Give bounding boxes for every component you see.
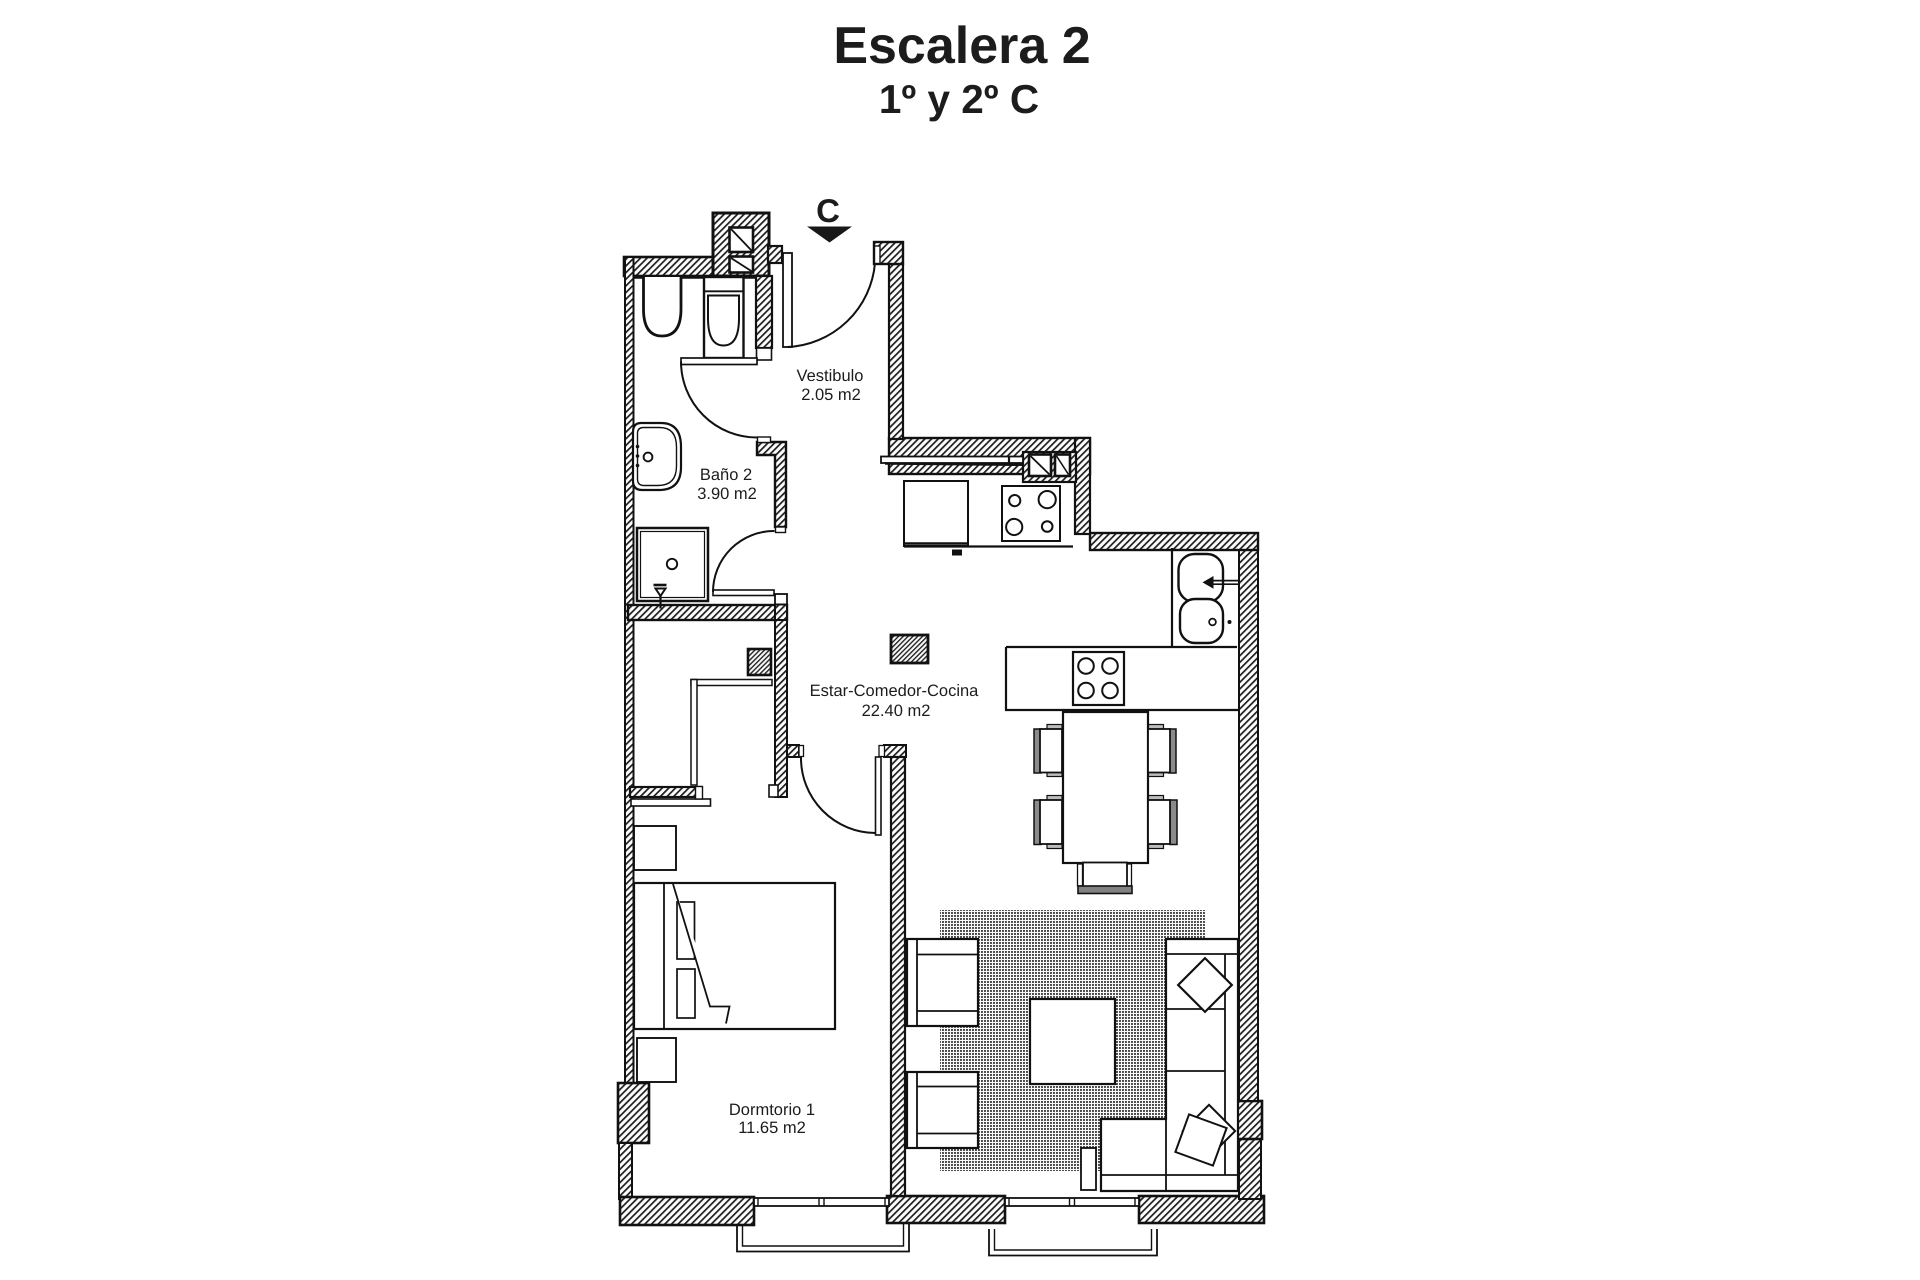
svg-text:Baño 2: Baño 2 [700,466,752,484]
svg-text:C: C [816,192,840,229]
svg-text:Dormtorio 1: Dormtorio 1 [729,1101,815,1119]
svg-text:22.40 m2: 22.40 m2 [862,702,931,720]
svg-text:2.05 m2: 2.05 m2 [801,386,861,404]
svg-text:Escalera 2: Escalera 2 [833,17,1090,75]
svg-text:Estar-Comedor-Cocina: Estar-Comedor-Cocina [810,682,980,700]
svg-text:3.90 m2: 3.90 m2 [697,485,757,503]
svg-text:11.65 m2: 11.65 m2 [738,1119,806,1137]
svg-text:1º y 2º C: 1º y 2º C [879,76,1039,122]
svg-text:Vestibulo: Vestibulo [797,367,864,385]
